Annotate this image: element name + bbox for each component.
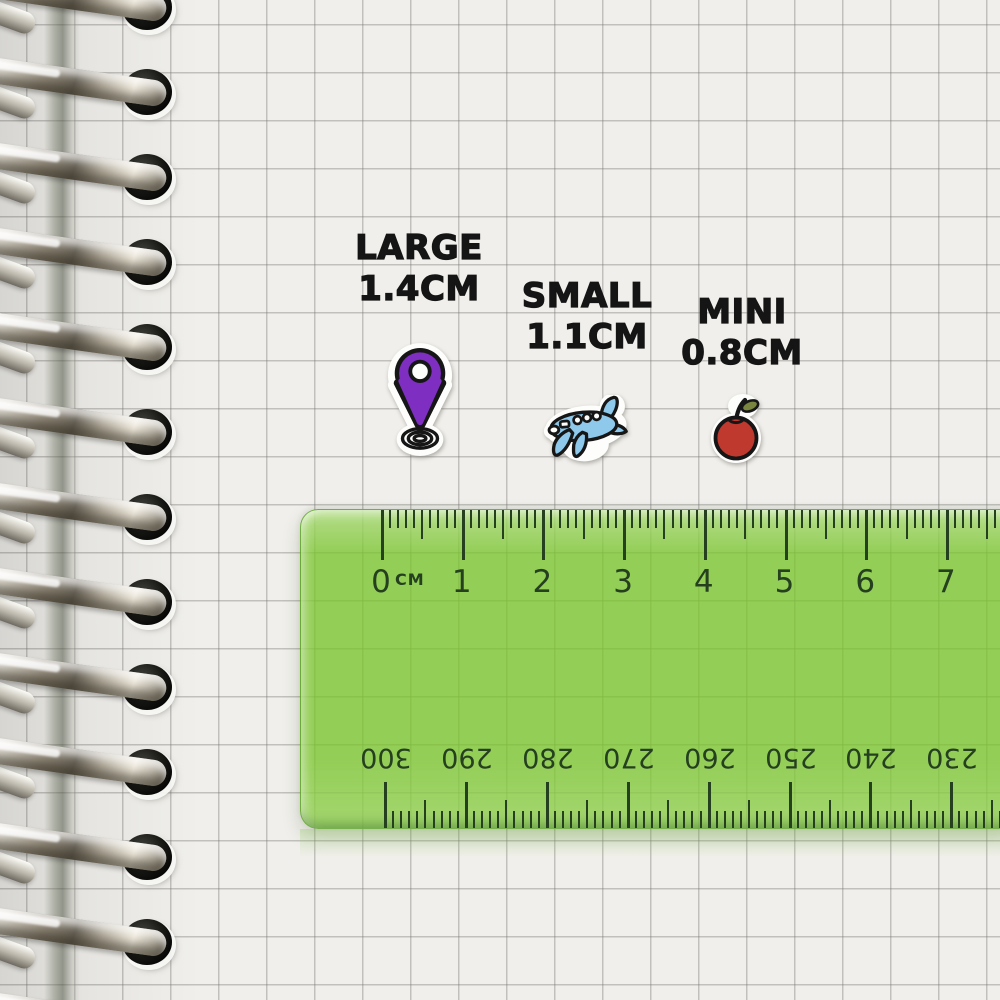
ruler-tick	[683, 811, 685, 828]
binding-ring	[0, 387, 220, 473]
ruler-tick	[740, 811, 742, 828]
ruler-tick	[413, 510, 415, 528]
binding-ring-wire	[0, 990, 168, 1000]
ruler-tick	[534, 510, 536, 528]
ruler-tick	[845, 811, 847, 828]
ruler-tick	[389, 510, 391, 528]
ruler-tick	[478, 510, 480, 528]
ruler-tick	[454, 510, 456, 528]
ruler-tick	[934, 811, 936, 828]
ruler-tick	[639, 510, 641, 528]
ruler-tick	[805, 811, 807, 828]
ruler-tick	[663, 510, 665, 539]
ruler-tick	[865, 510, 868, 560]
ruler-tick	[400, 811, 402, 828]
ruler-tick	[849, 510, 851, 528]
binding-ring	[0, 897, 220, 983]
ruler-tick	[494, 510, 496, 528]
ruler-tick	[647, 510, 649, 528]
ruler-tick	[801, 510, 803, 528]
ruler-tick	[530, 811, 532, 828]
ruler-tick	[384, 782, 387, 828]
ruler-tick	[615, 510, 617, 528]
ruler-tick	[623, 510, 626, 560]
apple-icon	[710, 393, 764, 466]
ruler-tick	[873, 510, 875, 528]
ruler-cm-number: 2	[520, 564, 564, 600]
ruler-tick	[720, 510, 722, 528]
airplane-sticker	[542, 395, 632, 463]
ruler-tick	[764, 811, 766, 828]
location-pin-sticker	[385, 341, 455, 462]
ruler-tick	[651, 811, 653, 828]
ruler-tick	[886, 811, 888, 828]
ruler-tick	[611, 811, 613, 828]
ruler-tick	[570, 811, 572, 828]
ruler-tick	[635, 811, 637, 828]
binding-ring	[0, 217, 220, 303]
label-mini-name: MINI	[667, 292, 817, 333]
ruler-tick	[680, 510, 682, 528]
ruler-tick	[522, 811, 524, 828]
ruler-tick	[785, 510, 788, 560]
ruler-tick	[489, 811, 491, 828]
binding-ring	[0, 472, 220, 558]
ruler-tick	[416, 811, 418, 828]
binding-ring	[0, 132, 220, 218]
ruler-tick	[768, 510, 770, 528]
ruler-tick	[583, 510, 585, 539]
ruler-tick	[910, 800, 912, 828]
ruler-tick	[994, 510, 996, 528]
ruler-tick	[408, 811, 410, 828]
ruler-tick	[433, 811, 435, 828]
ruler-tick	[486, 510, 488, 528]
ruler-tick	[675, 811, 677, 828]
ruler-tick	[950, 782, 953, 828]
ruler-tick	[978, 510, 980, 528]
ruler-tick	[716, 811, 718, 828]
ruler-tick	[708, 782, 711, 828]
ruler-tick	[776, 510, 778, 528]
ruler-tick	[397, 510, 399, 528]
ruler-tick	[518, 510, 520, 528]
apple-sticker	[710, 393, 764, 466]
ruler-tick	[986, 510, 988, 539]
airplane-icon	[542, 395, 632, 463]
ruler-mm-number: 240	[839, 742, 903, 773]
ruler-mm-number: 250	[759, 742, 823, 773]
label-small: SMALL 1.1CM	[512, 276, 662, 358]
ruler-tick	[938, 510, 940, 528]
ruler-tick	[853, 811, 855, 828]
label-mini-size: 0.8CM	[667, 333, 817, 374]
ruler-tick	[797, 811, 799, 828]
ruler-tick	[594, 811, 596, 828]
ruler-tick	[881, 510, 883, 528]
ruler-tick	[712, 510, 714, 528]
ruler-cm-number: 3	[601, 564, 645, 600]
ruler-tick	[966, 811, 968, 828]
ruler-tick	[424, 800, 426, 828]
ruler-tick	[627, 782, 630, 828]
ruler-mm-number: 290	[435, 742, 499, 773]
ruler-tick	[809, 510, 811, 528]
ruler-tick	[429, 510, 431, 528]
ruler-tick	[970, 510, 972, 528]
ruler-tick	[449, 811, 451, 828]
ruler-tick	[926, 811, 928, 828]
binding-ring	[0, 812, 220, 898]
ruler-tick	[700, 811, 702, 828]
ruler-tick	[513, 811, 515, 828]
ruler-tick	[906, 510, 908, 539]
ruler-tick	[473, 811, 475, 828]
location-pin-icon	[385, 341, 455, 462]
ruler-tick	[833, 510, 835, 528]
ruler-tick	[631, 510, 633, 528]
ruler-tick	[405, 510, 407, 528]
ruler-tick	[446, 510, 448, 528]
ruler-tick	[643, 811, 645, 828]
ruler-tick	[946, 510, 949, 560]
ruler-cm-number: 6	[843, 564, 887, 600]
ruler-tick	[930, 510, 932, 528]
ruler-tick	[659, 811, 661, 828]
ruler-tick	[381, 510, 384, 560]
ruler-tick	[542, 510, 545, 560]
ruler-tick	[619, 811, 621, 828]
ruler-tick	[575, 510, 577, 528]
ruler-tick	[470, 510, 472, 528]
ruler-tick	[748, 800, 750, 828]
label-small-name: SMALL	[512, 276, 662, 317]
ruler-tick	[505, 800, 507, 828]
ruler-mm-number: 260	[678, 742, 742, 773]
ruler-tick	[756, 811, 758, 828]
ruler-tick	[894, 811, 896, 828]
ruler-tick	[591, 510, 593, 528]
binding-ring-stub	[0, 0, 38, 37]
ruler-tick	[983, 811, 985, 828]
binding-ring	[0, 0, 220, 48]
ruler-tick	[861, 811, 863, 828]
ruler-tick	[962, 510, 964, 528]
ruler-tick	[441, 811, 443, 828]
ruler-tick	[918, 811, 920, 828]
ruler-tick	[732, 811, 734, 828]
ruler-tick	[421, 510, 423, 539]
ruler-tick	[526, 510, 528, 528]
ruler-tick	[437, 510, 439, 528]
ruler-tick	[599, 510, 601, 528]
ruler-tick	[817, 510, 819, 528]
ruler-tick	[497, 811, 499, 828]
ruler-tick	[510, 510, 512, 528]
ruler-tick	[724, 811, 726, 828]
label-large-size: 1.4CM	[344, 269, 494, 310]
ruler-tick	[736, 510, 738, 528]
label-large-name: LARGE	[344, 228, 494, 269]
ruler-tick	[914, 510, 916, 528]
ruler-tick	[760, 510, 762, 528]
ruler-tick	[704, 510, 707, 560]
ruler-tick	[877, 811, 879, 828]
ruler-tick	[897, 510, 899, 528]
ruler-tick	[462, 510, 465, 560]
ruler-tick	[691, 811, 693, 828]
ruler-unit-label: CM	[395, 570, 425, 589]
binding-ring	[0, 557, 220, 643]
ruler-tick	[550, 510, 552, 528]
ruler-mm-number: 280	[516, 742, 580, 773]
ruler-tick	[942, 811, 944, 828]
ruler-tick	[780, 811, 782, 828]
ruler-tick	[655, 510, 657, 528]
ruler-tick	[857, 510, 859, 528]
label-small-size: 1.1CM	[512, 317, 662, 358]
notebook-photo: LARGE 1.4CM SMALL 1.1CM MINI 0.8CM	[0, 0, 1000, 1000]
ruler-tick	[457, 811, 459, 828]
ruler-tick	[954, 510, 956, 528]
ruler-tick	[481, 811, 483, 828]
label-mini: MINI 0.8CM	[667, 292, 817, 374]
ruler-tick	[688, 510, 690, 528]
ruler-tick	[538, 811, 540, 828]
ruler-tick	[578, 811, 580, 828]
ruler-tick	[793, 510, 795, 528]
ruler-tick	[502, 510, 504, 539]
ruler-tick	[562, 811, 564, 828]
ruler-tick	[607, 510, 609, 528]
ruler-tick	[546, 782, 549, 828]
binding-ring	[0, 727, 220, 813]
ruler-tick	[567, 510, 569, 528]
ruler-tick	[975, 811, 977, 828]
binding-ring	[0, 982, 220, 1000]
ruler-tick	[772, 811, 774, 828]
ruler-tick	[559, 510, 561, 528]
ruler-tick	[869, 782, 872, 828]
binding-ring	[0, 302, 220, 388]
ruler-tick	[991, 800, 993, 828]
ruler-tick	[821, 811, 823, 828]
ruler-tick	[829, 800, 831, 828]
binding-ring	[0, 642, 220, 728]
ruler-mm-number: 270	[597, 742, 661, 773]
binding-ring	[0, 47, 220, 133]
ruler-tick	[586, 800, 588, 828]
ruler-tick	[728, 510, 730, 528]
ruler-tick	[602, 811, 604, 828]
green-ruler: 01234567 CM 300290280270260250240230	[300, 509, 1000, 829]
ruler-tick	[889, 510, 891, 528]
ruler-tick	[825, 510, 827, 539]
label-large: LARGE 1.4CM	[344, 228, 494, 310]
ruler-tick	[465, 782, 468, 828]
ruler-cm-number: 5	[763, 564, 807, 600]
ruler-tick	[902, 811, 904, 828]
ruler-tick	[813, 811, 815, 828]
ruler-tick	[752, 510, 754, 528]
ruler-tick	[922, 510, 924, 528]
ruler-tick	[744, 510, 746, 539]
ruler-cm-number: 4	[682, 564, 726, 600]
ruler-reflection	[300, 829, 1000, 857]
ruler-tick	[554, 811, 556, 828]
ruler-cm-number: 1	[440, 564, 484, 600]
ruler-mm-number: 300	[354, 742, 418, 773]
ruler-tick	[958, 811, 960, 828]
ruler-cm-number: 7	[924, 564, 968, 600]
ruler-tick	[392, 811, 394, 828]
ruler-tick	[696, 510, 698, 528]
ruler-tick	[667, 800, 669, 828]
ruler-tick	[837, 811, 839, 828]
ruler-tick	[672, 510, 674, 528]
ruler-mm-number: 230	[920, 742, 984, 773]
ruler-tick	[789, 782, 792, 828]
ruler-tick	[841, 510, 843, 528]
